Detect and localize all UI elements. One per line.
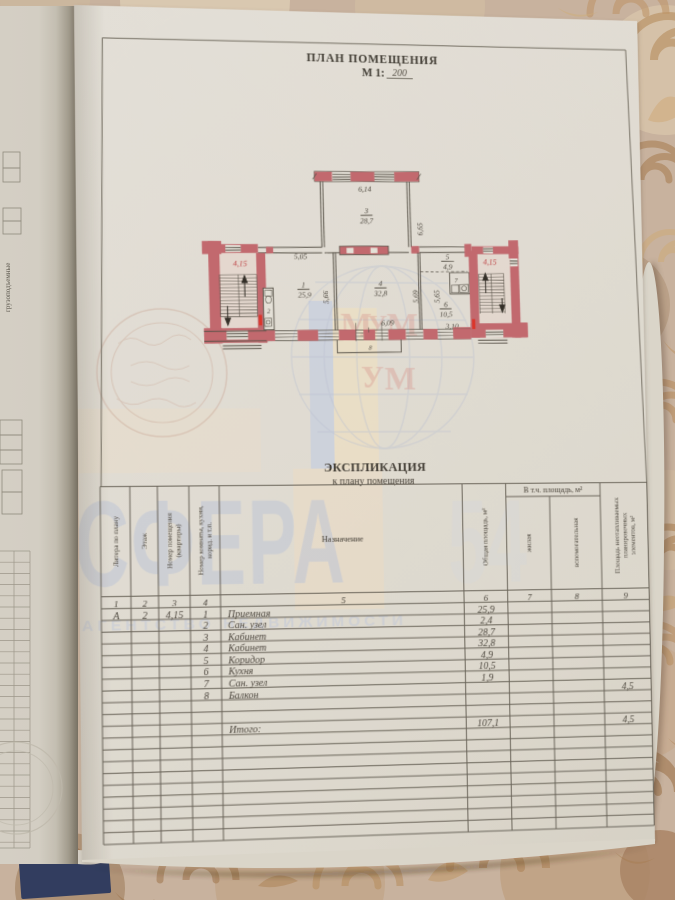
svg-text:7: 7 bbox=[454, 278, 458, 285]
svg-text:10,5: 10,5 bbox=[439, 310, 452, 319]
svg-text:7: 7 bbox=[527, 592, 532, 602]
svg-text:Кабинет: Кабинет bbox=[227, 643, 267, 655]
svg-text:25,9: 25,9 bbox=[298, 291, 312, 300]
svg-text:4: 4 bbox=[203, 644, 208, 655]
svg-text:10,5: 10,5 bbox=[479, 661, 496, 672]
svg-text:корид. и т.п.: корид. и т.п. bbox=[205, 522, 213, 558]
svg-text:Сан. узел: Сан. узел bbox=[228, 620, 267, 632]
svg-text:6: 6 bbox=[484, 593, 489, 603]
svg-text:32,8: 32,8 bbox=[477, 638, 495, 649]
svg-text:(квартиры): (квартиры) bbox=[174, 523, 182, 557]
svg-text:4,9: 4,9 bbox=[443, 262, 453, 271]
svg-text:4,15: 4,15 bbox=[166, 610, 184, 621]
svg-text:жилая: жилая bbox=[525, 533, 533, 553]
svg-text:ЭКСПЛИКАЦИЯ: ЭКСПЛИКАЦИЯ bbox=[324, 460, 426, 474]
svg-text:Номер комнаты, кухни,: Номер комнаты, кухни, bbox=[196, 505, 205, 575]
svg-text:Кабинет: Кабинет bbox=[227, 631, 267, 643]
svg-text:1: 1 bbox=[203, 609, 208, 620]
svg-text:28,7: 28,7 bbox=[360, 216, 374, 225]
svg-text:Итого:: Итого: bbox=[228, 725, 261, 737]
svg-text:8: 8 bbox=[575, 592, 580, 602]
svg-text:6: 6 bbox=[204, 668, 209, 679]
svg-text:4,5: 4,5 bbox=[622, 681, 634, 692]
svg-text:2: 2 bbox=[203, 621, 208, 632]
svg-text:элементов, м²: элементов, м² bbox=[629, 516, 637, 555]
svg-text:5,66: 5,66 bbox=[321, 291, 330, 304]
svg-text:Назначение: Назначение bbox=[322, 534, 364, 544]
svg-text:4,15: 4,15 bbox=[483, 258, 497, 267]
svg-text:6,14: 6,14 bbox=[358, 185, 371, 194]
svg-text:4,15: 4,15 bbox=[233, 259, 247, 268]
svg-text:32,8: 32,8 bbox=[373, 289, 387, 298]
svg-text:4,9: 4,9 bbox=[481, 650, 493, 661]
svg-text:Приемная: Приемная bbox=[227, 608, 271, 620]
svg-text:6,09: 6,09 bbox=[381, 318, 394, 327]
svg-text:Сан. узел: Сан. узел bbox=[229, 678, 268, 690]
svg-text:5: 5 bbox=[203, 656, 208, 667]
svg-text:вспомогательная: вспомогательная bbox=[572, 517, 581, 567]
svg-text:1: 1 bbox=[301, 281, 305, 290]
svg-text:2,4: 2,4 bbox=[480, 616, 492, 627]
svg-text:9: 9 bbox=[624, 591, 629, 601]
svg-text:1: 1 bbox=[114, 599, 119, 609]
svg-text:Коридор: Коридор bbox=[227, 655, 265, 667]
svg-text:Номер помещения: Номер помещения bbox=[165, 512, 174, 569]
svg-text:Литера по плану: Литера по плану bbox=[112, 516, 121, 567]
svg-text:4: 4 bbox=[378, 279, 382, 288]
svg-text:6: 6 bbox=[444, 300, 448, 309]
svg-text:3: 3 bbox=[363, 207, 368, 216]
svg-text:У: У bbox=[361, 359, 385, 394]
svg-text:3: 3 bbox=[202, 633, 208, 644]
svg-text:М 1:: М 1: bbox=[362, 66, 385, 79]
svg-text:6,65: 6,65 bbox=[416, 223, 425, 236]
svg-text:Площадь неотапливаемых: Площадь неотапливаемых bbox=[612, 497, 621, 574]
svg-text:1,9: 1,9 bbox=[481, 673, 493, 684]
svg-text:5,69: 5,69 bbox=[411, 290, 420, 303]
svg-text:В т.ч. площадь, м²: В т.ч. площадь, м² bbox=[524, 486, 583, 495]
svg-text:Балкон: Балкон bbox=[228, 690, 259, 702]
svg-text:5,05: 5,05 bbox=[294, 252, 308, 261]
svg-text:5,65: 5,65 bbox=[432, 290, 441, 303]
svg-text:2: 2 bbox=[142, 610, 147, 621]
svg-text:5: 5 bbox=[446, 253, 450, 262]
svg-text:М: М bbox=[384, 360, 416, 397]
svg-text:грузоподъемные: грузоподъемные bbox=[4, 263, 12, 312]
svg-text:4: 4 bbox=[203, 598, 208, 608]
svg-text:3: 3 bbox=[171, 598, 177, 608]
svg-text:к плану помещения: к плану помещения bbox=[332, 476, 414, 487]
svg-text:4,5: 4,5 bbox=[622, 715, 634, 726]
svg-text:200: 200 bbox=[392, 68, 407, 79]
svg-text:А: А bbox=[112, 611, 120, 622]
svg-text:2: 2 bbox=[142, 599, 147, 609]
svg-text:28,7: 28,7 bbox=[478, 627, 496, 638]
svg-text:Этаж: Этаж bbox=[141, 533, 149, 549]
svg-text:8: 8 bbox=[204, 691, 209, 702]
svg-text:ПЛАН ПОМЕЩЕНИЯ: ПЛАН ПОМЕЩЕНИЯ bbox=[306, 51, 438, 68]
svg-text:107,1: 107,1 bbox=[477, 718, 499, 729]
svg-text:25,9: 25,9 bbox=[478, 604, 495, 615]
svg-text:Кухня: Кухня bbox=[227, 667, 253, 679]
svg-text:Общая площадь, м²: Общая площадь, м² bbox=[481, 508, 490, 566]
svg-text:5: 5 bbox=[341, 596, 346, 606]
